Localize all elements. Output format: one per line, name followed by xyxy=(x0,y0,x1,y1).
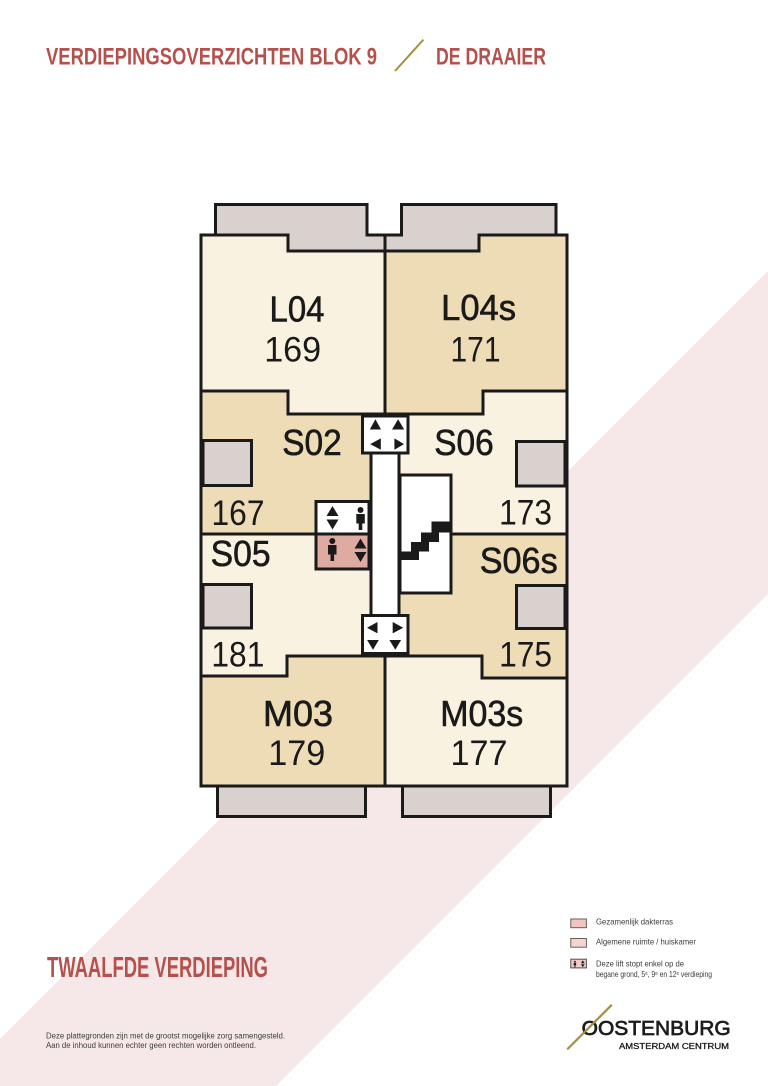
svg-text:M03s: M03s xyxy=(440,693,523,734)
svg-text:Deze lift stopt enkel op de: Deze lift stopt enkel op de xyxy=(596,959,684,968)
svg-text:Algemene ruimte / huiskamer: Algemene ruimte / huiskamer xyxy=(596,937,696,946)
svg-text:L04: L04 xyxy=(270,289,325,330)
svg-text:Aan de inhoud kunnen echter ge: Aan de inhoud kunnen echter geen rechten… xyxy=(46,1041,256,1050)
svg-text:179: 179 xyxy=(268,734,325,773)
svg-text:Deze plattegronden zijn met de: Deze plattegronden zijn met de grootst m… xyxy=(46,1032,285,1041)
svg-text:VERDIEPINGSOVERZICHTEN BLOK 9: VERDIEPINGSOVERZICHTEN BLOK 9 xyxy=(46,44,377,71)
svg-text:173: 173 xyxy=(499,494,552,533)
svg-text:167: 167 xyxy=(212,494,265,533)
svg-text:S02: S02 xyxy=(282,422,342,463)
svg-text:begane grond, 5ᵉ, 9ᵉ en 12ᵉ ve: begane grond, 5ᵉ, 9ᵉ en 12ᵉ verdieping xyxy=(596,970,712,979)
svg-text:M03: M03 xyxy=(263,693,333,734)
svg-text:Gezamenlijk dakterras: Gezamenlijk dakterras xyxy=(596,918,673,927)
svg-text:177: 177 xyxy=(451,734,508,773)
svg-text:L04s: L04s xyxy=(441,287,516,328)
svg-text:181: 181 xyxy=(211,636,264,675)
svg-text:S05: S05 xyxy=(211,533,271,574)
svg-text:AMSTERDAM CENTRUM: AMSTERDAM CENTRUM xyxy=(619,1042,729,1051)
svg-text:169: 169 xyxy=(264,331,321,370)
svg-text:171: 171 xyxy=(451,331,501,370)
svg-text:S06s: S06s xyxy=(480,540,558,581)
svg-text:TWAALFDE VERDIEPING: TWAALFDE VERDIEPING xyxy=(47,952,268,984)
svg-text:175: 175 xyxy=(499,636,552,675)
svg-text:DE DRAAIER: DE DRAAIER xyxy=(436,44,546,71)
svg-text:S06: S06 xyxy=(434,422,494,463)
svg-text:OOSTENBURG: OOSTENBURG xyxy=(582,1018,731,1040)
